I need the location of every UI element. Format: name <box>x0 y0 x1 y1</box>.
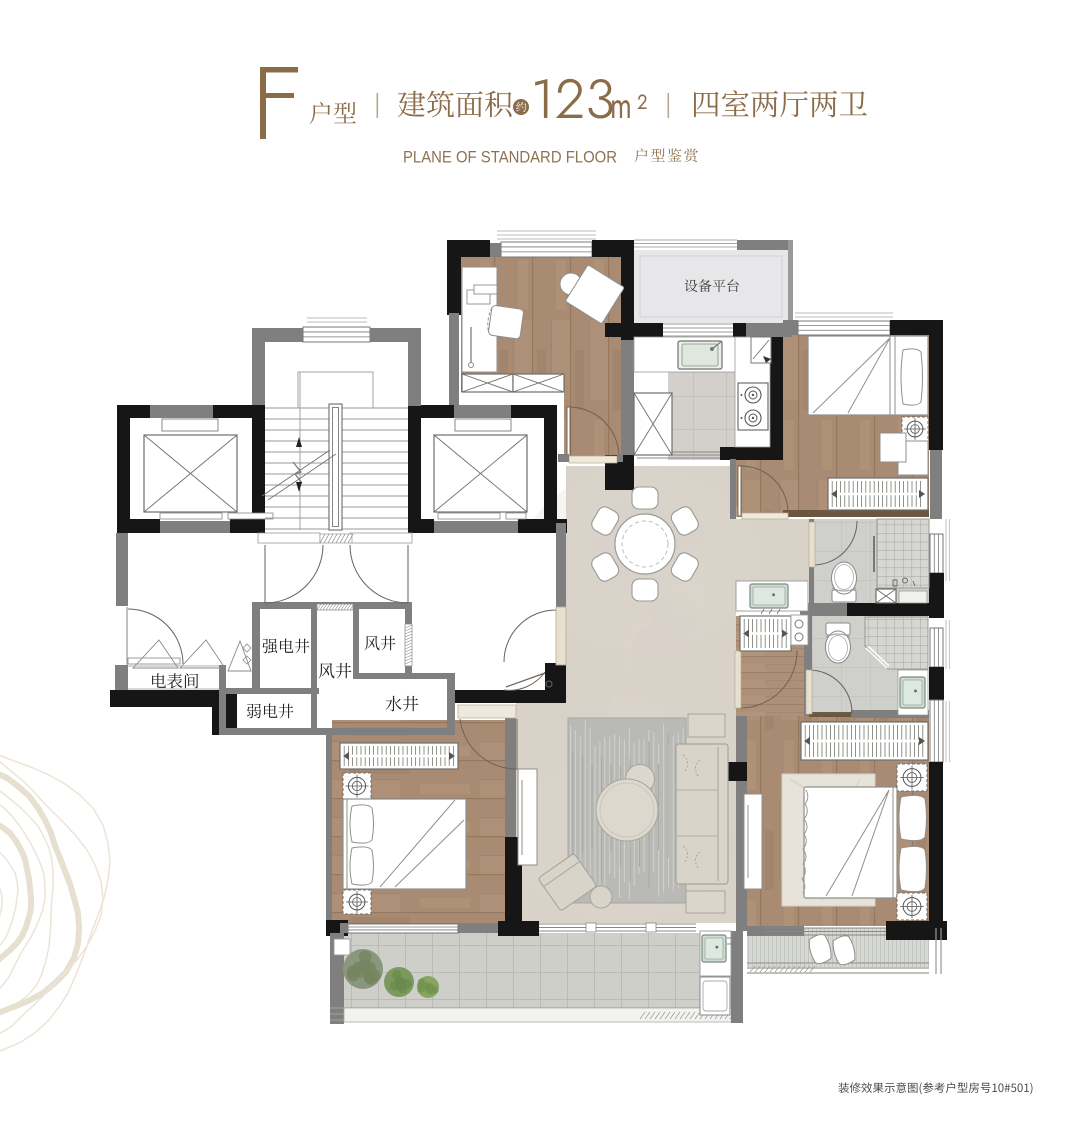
svg-text:PLANE OF STANDARD FLOOR: PLANE OF STANDARD FLOOR <box>403 148 617 167</box>
